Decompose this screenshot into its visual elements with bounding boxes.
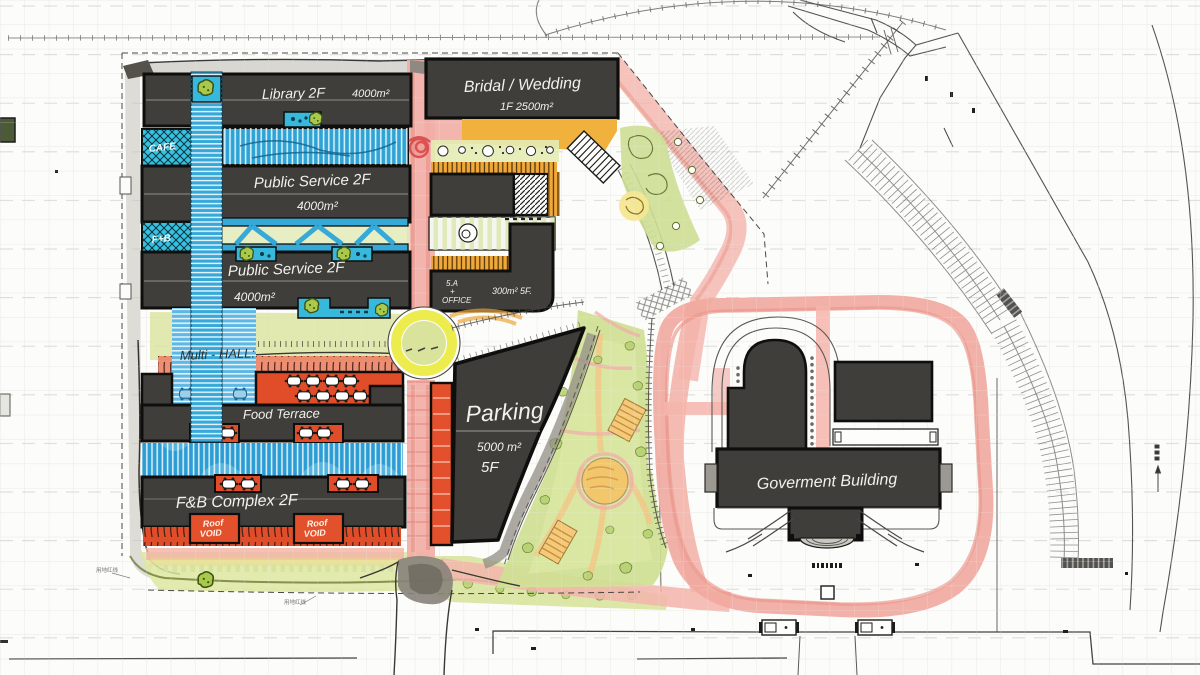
svg-text:5F: 5F <box>481 459 499 476</box>
svg-text:用地红线: 用地红线 <box>96 566 119 574</box>
svg-text:F+B: F+B <box>151 233 171 246</box>
svg-text:4000m²: 4000m² <box>352 88 390 100</box>
svg-text:5000 m²: 5000 m² <box>477 440 522 454</box>
svg-text:+: + <box>450 287 455 296</box>
svg-text:Multi - HALL:: Multi - HALL: <box>180 345 256 363</box>
svg-text:4000m²: 4000m² <box>234 290 276 304</box>
svg-text:VOID: VOID <box>303 527 326 539</box>
svg-text:300m² 5F.: 300m² 5F. <box>492 286 532 296</box>
svg-text:1F 2500m²: 1F 2500m² <box>500 101 553 113</box>
svg-text:4000m²: 4000m² <box>297 199 339 213</box>
svg-text:Food Terrace: Food Terrace <box>243 406 320 422</box>
svg-text:Parking: Parking <box>465 397 544 427</box>
svg-text:OFFICE: OFFICE <box>442 296 472 305</box>
svg-text:用地红线: 用地红线 <box>284 598 307 606</box>
svg-text:F&B Complex 2F: F&B Complex 2F <box>176 492 299 512</box>
svg-text:VOID: VOID <box>199 527 222 539</box>
svg-text:Library 2F: Library 2F <box>262 84 327 102</box>
